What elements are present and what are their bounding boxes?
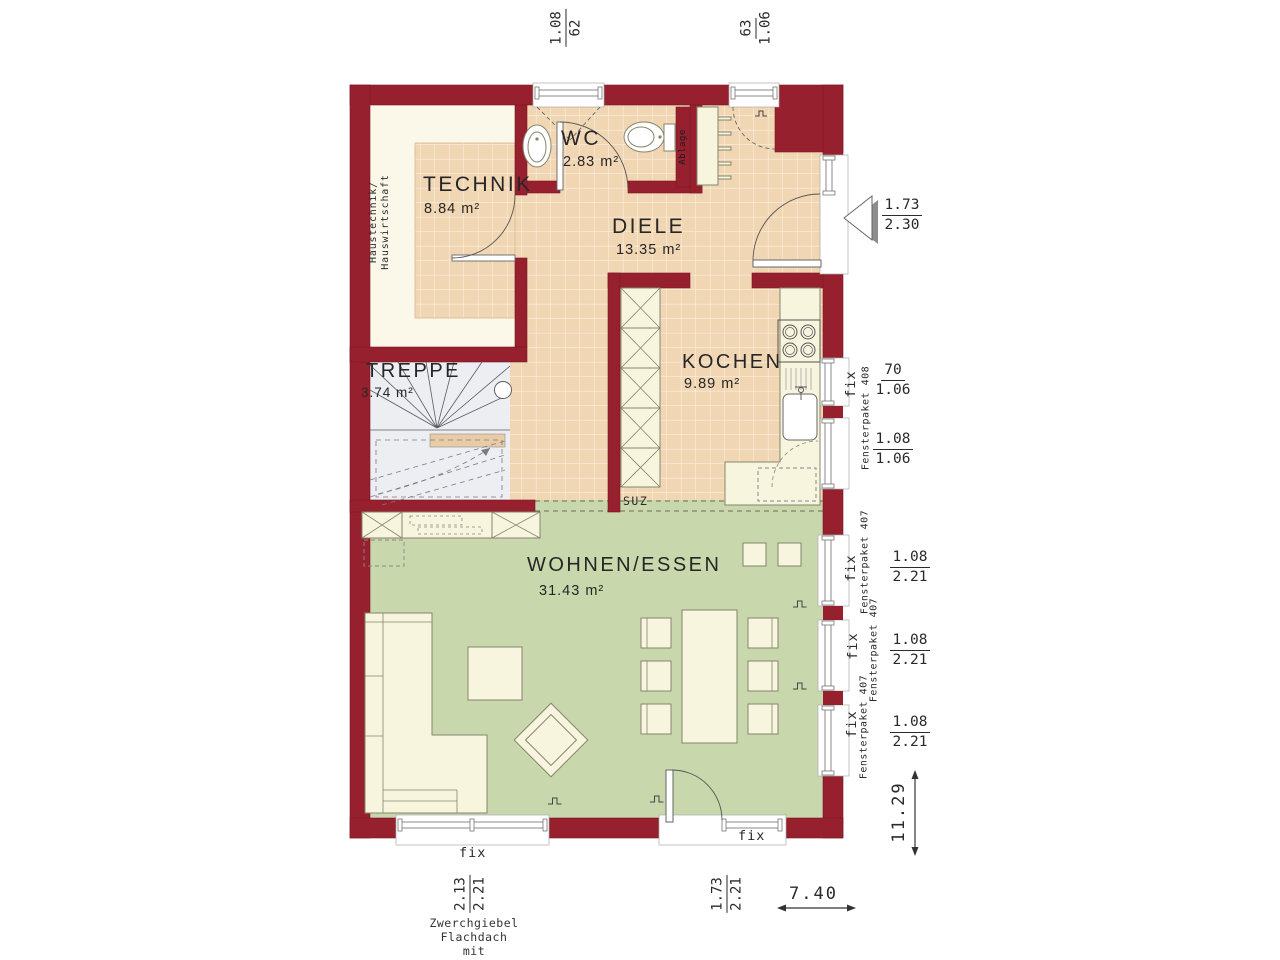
room-area-wohnen: 31.43 m² <box>539 583 604 599</box>
fensterpaket-407-label-3: Fensterpaket 407 <box>859 675 870 779</box>
washbasin <box>523 125 551 167</box>
window-pier <box>823 406 843 418</box>
dim-terrace-door: 1.73 2.21 <box>710 875 745 913</box>
fensterpaket-407-label-2: Fensterpaket 407 <box>869 598 880 702</box>
kitchen-tall-cabinets <box>621 288 660 487</box>
room-area-treppe: 3.74 m² <box>361 385 414 400</box>
dim-value: 2.21 <box>893 733 928 751</box>
footnote-line2: mit Fassadenaufdopplung <box>393 944 555 960</box>
fix-label-terrace: fix <box>738 828 765 844</box>
window-pier <box>823 691 843 705</box>
dim-top-window-left: 1.08 62 <box>549 9 584 47</box>
entrance-arrow-icon <box>844 196 878 244</box>
dim-value: 70 <box>881 362 904 381</box>
suz-label: SUZ <box>623 494 648 508</box>
dim-value: 2.30 <box>885 216 920 234</box>
room-area-diele: 13.35 m² <box>616 242 681 258</box>
dim-value: 2.21 <box>893 568 928 586</box>
dim-value: 1.08 <box>549 9 567 47</box>
room-label-kochen: KOCHEN <box>682 351 783 374</box>
dim-living-window-1: 1.08 2.21 <box>884 549 936 586</box>
dining-table <box>682 610 737 743</box>
kitchen-sink <box>783 387 817 440</box>
dim-value: 1.73 <box>882 197 923 216</box>
room-label-wohnen: WOHNEN/ESSEN <box>527 554 721 577</box>
stair-post <box>495 382 512 399</box>
dim-value: 62 <box>567 20 584 37</box>
fix-label-kitchen: fix <box>843 370 859 397</box>
dim-value: 1.73 <box>710 875 728 913</box>
fix-label-living-2: fix <box>845 632 861 659</box>
dim-kitchen-window-small: 70 1.06 <box>867 362 919 399</box>
kitchen-window-large <box>818 418 849 489</box>
dim-value: 2.21 <box>471 877 488 911</box>
dim-overall-width: 7.40 <box>789 884 838 904</box>
fix-label-living-1: fix <box>843 554 859 581</box>
ablage-label: Ablage <box>678 129 688 165</box>
coffee-table <box>468 647 522 700</box>
fix-label-bottom-window: fix <box>459 845 486 861</box>
floor-plan-page: TECHNIK 8.84 m² WC 2.83 m² DIELE 13.35 m… <box>0 0 1280 960</box>
technik-tile-area <box>415 143 515 318</box>
dim-value: 2.21 <box>893 651 928 669</box>
dim-value: 1.06 <box>876 381 911 399</box>
toilet <box>624 122 675 152</box>
dim-value: 1.06 <box>876 450 911 468</box>
dim-value: 1.06 <box>757 11 774 45</box>
room-label-treppe: TREPPE <box>366 360 461 383</box>
dim-living-window-2: 1.08 2.21 <box>884 632 936 669</box>
dim-value: 2.21 <box>728 877 745 911</box>
dim-kitchen-window-large: 1.08 1.06 <box>867 431 919 468</box>
dim-value: 1.08 <box>873 431 914 450</box>
dim-value: 1.08 <box>890 549 931 568</box>
haustechnik-line2: Hauswirtschaft <box>380 174 392 270</box>
dim-overall-depth: 11.29 <box>889 781 909 842</box>
room-label-wc: WC <box>561 127 601 151</box>
room-label-technik: TECHNIK <box>423 173 533 197</box>
haustechnik-line1: Haustechnik/ <box>368 174 380 270</box>
room-label-diele: DIELE <box>612 215 685 239</box>
haustechnik-label: Haustechnik/ Hauswirtschaft <box>368 174 392 270</box>
room-area-wc: 2.83 m² <box>563 154 619 170</box>
window-pier <box>823 606 843 620</box>
dim-value: 2.13 <box>453 875 471 913</box>
bottom-window <box>396 815 549 845</box>
room-area-kochen: 9.89 m² <box>684 376 740 392</box>
footnote-line1: Zwerchgiebel Flachdach <box>393 916 555 944</box>
dim-value: 1.08 <box>890 632 931 651</box>
dim-living-window-3: 1.08 2.21 <box>884 714 936 751</box>
footnote: Zwerchgiebel Flachdach mit Fassadenaufdo… <box>393 916 555 960</box>
dim-value: 63 <box>739 18 757 39</box>
dim-entrance-door: 1.73 2.30 <box>876 197 928 234</box>
dim-value: 1.08 <box>890 714 931 733</box>
floor-plan-drawing <box>0 0 1280 960</box>
dim-bottom-window: 2.13 2.21 <box>453 875 488 913</box>
room-area-technik: 8.84 m² <box>424 201 480 217</box>
dim-top-window-right: 63 1.06 <box>739 11 774 45</box>
